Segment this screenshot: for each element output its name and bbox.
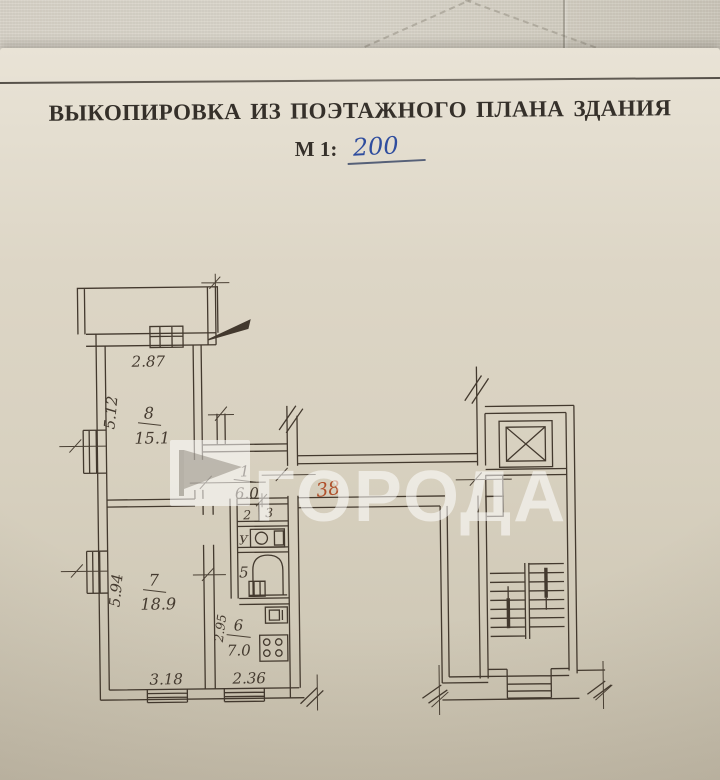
dim-room8-depth: 5.12	[100, 395, 121, 430]
stove	[260, 635, 288, 661]
kitchen-fixtures	[259, 607, 288, 661]
wc-mark: У	[239, 532, 249, 547]
kitchen6-area: 7.0	[227, 641, 252, 659]
balcony-window	[150, 326, 183, 347]
bath-stool	[249, 581, 265, 596]
dim-kitchen-depth: 2.95	[211, 613, 230, 644]
dim-room8-width: 2.87	[130, 352, 165, 370]
room2-number: 2	[242, 507, 251, 522]
dim-kitchen-width: 2.36	[231, 669, 266, 687]
window-room7	[87, 551, 109, 593]
watermark-text: ГОРОДА	[254, 457, 567, 537]
door-leaf-icon	[208, 320, 250, 340]
dim-room7-width: 3.18	[149, 670, 183, 688]
window-room7-south	[147, 689, 187, 702]
window-kitchen	[224, 688, 264, 701]
window-room8	[83, 430, 107, 473]
flag-icon	[179, 450, 184, 496]
room7-area: 18.9	[140, 594, 176, 613]
entrance-steps	[507, 669, 551, 699]
room8-number: 8	[144, 404, 154, 423]
photo-of-document: ВЫКОПИРОВКА ИЗ ПОЭТАЖНОГО ПЛАНА ЗДАНИЯ М…	[0, 0, 720, 780]
bath5-number: 5	[239, 563, 249, 581]
room8-area: 15.1	[134, 428, 170, 447]
sanitary-fixtures	[248, 529, 287, 596]
kitchen6-number: 6	[234, 616, 244, 634]
floor-plan-drawing: 2.87 5.12 8 15.1 7 18.9 5.94 3.18 1 6.0 …	[0, 0, 720, 780]
room7-number: 7	[149, 570, 160, 589]
kitchen-sink	[265, 607, 287, 623]
break-marks	[279, 374, 612, 707]
balcony	[77, 287, 218, 335]
dim-room7-depth: 5.94	[106, 573, 127, 608]
